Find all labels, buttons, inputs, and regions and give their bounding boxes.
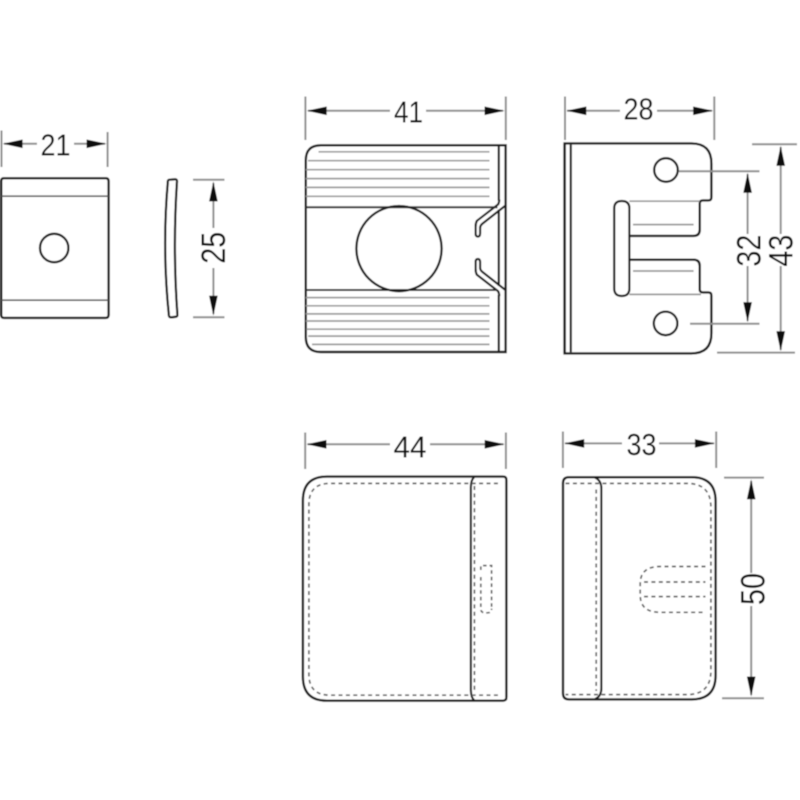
svg-text:28: 28: [624, 92, 654, 127]
svg-text:43: 43: [763, 235, 800, 267]
svg-text:41: 41: [394, 94, 423, 129]
svg-text:50: 50: [735, 573, 773, 605]
svg-text:33: 33: [627, 427, 657, 462]
svg-text:44: 44: [394, 429, 427, 464]
svg-text:25: 25: [195, 232, 233, 264]
svg-text:21: 21: [41, 128, 71, 163]
